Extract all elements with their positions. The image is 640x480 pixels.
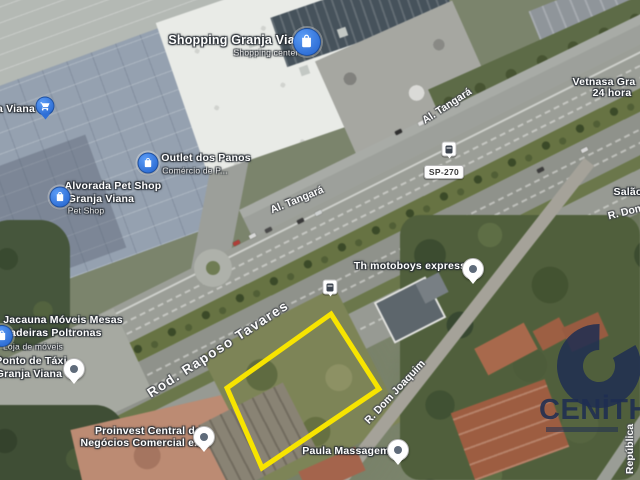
shopping-cart-icon bbox=[40, 101, 51, 112]
poi-label-jacauna-line2[interactable]: Cadeiras Poltronas bbox=[2, 328, 101, 340]
place-pin[interactable] bbox=[63, 358, 85, 380]
shopping-bag-icon bbox=[299, 34, 314, 49]
poi-label-th-motoboys[interactable]: Th motoboys express bbox=[354, 261, 466, 273]
supermarket-pin[interactable] bbox=[36, 97, 55, 116]
poi-label-taxi-line1[interactable]: Ponto de Táxi bbox=[0, 356, 67, 368]
place-pin[interactable] bbox=[193, 426, 215, 448]
satellite-map[interactable]: SP-270 Al. Tangará Al. Tangará Rod. Rapo… bbox=[0, 0, 640, 480]
bus-glyph bbox=[446, 145, 453, 153]
place-pin[interactable] bbox=[462, 258, 484, 280]
poi-label-paula-massagem[interactable]: Paula Massagem bbox=[302, 446, 389, 458]
poi-label-outlet-dos-panos[interactable]: Outlet dos Panos bbox=[161, 153, 251, 165]
poi-label-vetnasa-line2[interactable]: 24 hora bbox=[593, 88, 632, 100]
road-label-republica: República bbox=[624, 424, 636, 474]
poi-subtitle-outlet: Comércio de P... bbox=[162, 166, 227, 175]
shopping-pin[interactable] bbox=[138, 153, 159, 174]
pin-dot bbox=[70, 365, 78, 373]
bus-glyph bbox=[327, 283, 334, 291]
poi-subtitle-pet-shop: Pet Shop bbox=[68, 206, 105, 215]
poi-subtitle-jacauna: Loja de móveis bbox=[3, 342, 63, 351]
shopping-bag-icon bbox=[54, 191, 65, 202]
poi-label-salao[interactable]: Salão bbox=[613, 187, 640, 199]
poi-label-proinvest-line1[interactable]: Proinvest Central de bbox=[95, 426, 201, 438]
poi-label-alvorada-line1[interactable]: Alvorada Pet Shop bbox=[65, 181, 162, 193]
shopping-bag-icon bbox=[0, 330, 8, 342]
poi-label-alvorada-line2[interactable]: Granja Viana bbox=[68, 194, 134, 206]
pin-dot bbox=[200, 433, 208, 441]
shopping-pin[interactable] bbox=[293, 28, 321, 56]
poi-subtitle-shopping-center: Shopping center bbox=[234, 48, 299, 57]
pin-dot bbox=[394, 446, 402, 454]
satellite-imagery bbox=[0, 0, 640, 480]
shopping-pin[interactable] bbox=[50, 187, 71, 208]
poi-label-jacauna-line1[interactable]: Jacauna Móveis Mesas bbox=[3, 315, 123, 327]
bus-stop-icon[interactable] bbox=[323, 280, 338, 295]
poi-label-a-viana[interactable]: a Viana bbox=[0, 104, 35, 116]
pin-dot bbox=[469, 265, 477, 273]
poi-label-proinvest-line2[interactable]: Negócios Comercial e... bbox=[80, 438, 203, 450]
shopping-bag-icon bbox=[142, 157, 153, 168]
place-pin[interactable] bbox=[387, 439, 409, 461]
bus-stop-icon[interactable] bbox=[442, 142, 457, 157]
poi-label-taxi-line2[interactable]: Granja Viana bbox=[0, 369, 62, 381]
route-shield-sp270: SP-270 bbox=[424, 165, 464, 179]
roundabout bbox=[194, 249, 232, 287]
